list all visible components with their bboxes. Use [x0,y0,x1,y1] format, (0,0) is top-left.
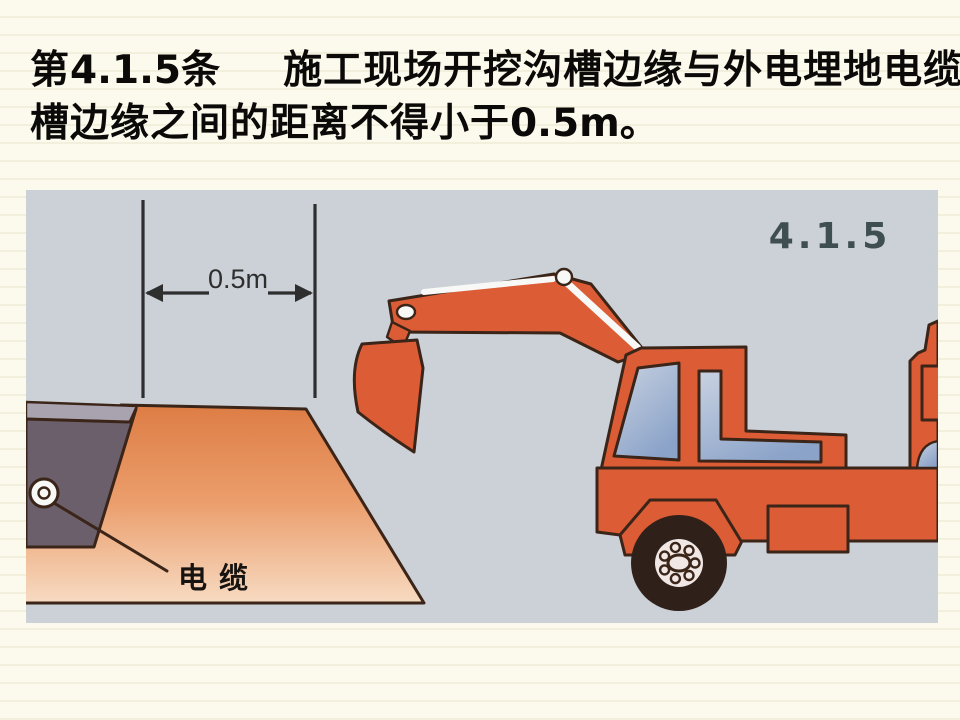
clause-suffix: 条 [181,49,221,92]
safety-figure-svg: 0.5m 电缆 [26,190,938,623]
wheel-lug [685,546,694,555]
equipment-box [768,506,848,552]
boom-joint [556,269,572,285]
slide-title: 第4.1.5条施工现场开挖沟槽边缘与外电埋地电缆沟 槽边缘之间的距离不得小于0.… [30,44,942,150]
wheel-lug [685,571,694,580]
rear-tower-panel [922,366,938,420]
title-line-2: 槽边缘之间的距离不得小于0.5m。 [30,97,942,150]
excavator-wheel [631,515,727,611]
wheel-lug [691,559,700,568]
measure-number: 0.5m [510,101,620,146]
slide-page: { "slide": { "title": { "clause_prefix":… [0,0,960,720]
figure-number-label: 4.1.5 [769,216,892,257]
arm-pin-hole [397,305,415,319]
wheel-axle [668,555,690,571]
title-line2-text: 槽边缘之间的距离不得小于 [30,102,510,145]
cable-label: 电缆 [178,562,260,595]
title-line-1: 第4.1.5条施工现场开挖沟槽边缘与外电埋地电缆沟 [30,44,942,97]
safety-figure: 0.5m 电缆 [26,190,938,623]
title-period: 。 [620,102,660,145]
dimension-label: 0.5m [208,264,268,294]
wheel-lug [671,543,680,552]
title-line1-text: 施工现场开挖沟槽边缘与外电埋地电缆沟 [283,49,960,92]
clause-prefix: 第 [30,49,70,92]
clause-number: 4.1.5 [70,48,181,93]
wheel-lug [671,574,680,583]
cable-core [39,488,50,499]
